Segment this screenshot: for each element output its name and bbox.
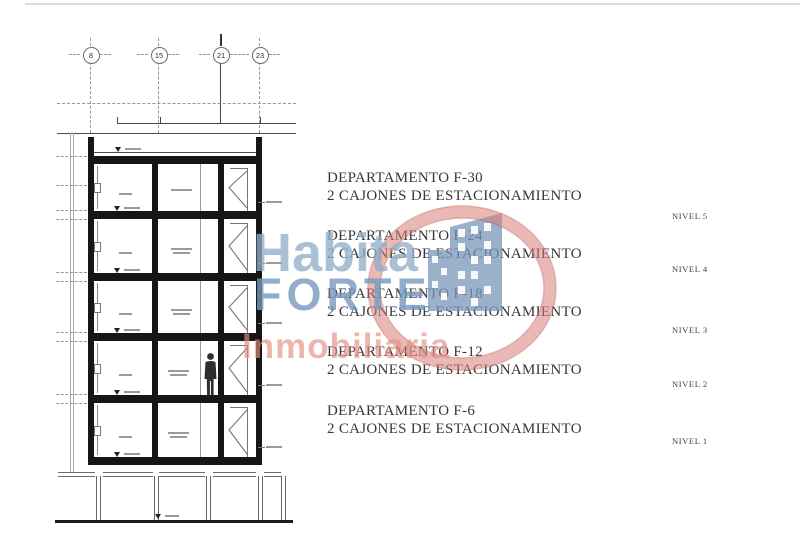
level-stub xyxy=(56,332,87,333)
level-marker-text xyxy=(124,207,140,209)
grid-bubble-label: 15 xyxy=(155,51,163,60)
stair-header xyxy=(230,285,247,286)
datum-dashed-line xyxy=(57,103,296,104)
partition-line xyxy=(200,341,201,395)
stair-wall xyxy=(247,223,248,273)
stair-header xyxy=(230,223,247,224)
level-marker-icon xyxy=(114,206,120,211)
department-label: DEPARTAMENTO F-6 xyxy=(327,403,582,421)
interior-column xyxy=(152,160,158,460)
window-sill xyxy=(94,303,101,313)
grid-tick xyxy=(69,54,80,55)
grid-tick xyxy=(168,54,179,55)
parapet-tick xyxy=(220,117,221,123)
basement-beam xyxy=(159,472,205,477)
level-marker-text xyxy=(125,148,141,150)
stair-wall xyxy=(247,345,248,395)
boundary-line xyxy=(73,133,74,473)
level-marker-icon xyxy=(114,268,120,273)
partition-line xyxy=(200,164,201,211)
landing-tick xyxy=(258,323,265,324)
stair-chevron xyxy=(229,171,247,208)
grid-axis-line xyxy=(220,62,221,123)
roof-slab xyxy=(88,156,262,164)
stair-chevron xyxy=(229,226,247,270)
landing-text xyxy=(266,262,282,264)
unit-block: DEPARTAMENTO F-30 2 CAJONES DE ESTACIONA… xyxy=(327,170,582,205)
stair-wall xyxy=(247,168,248,211)
landing-tick xyxy=(258,385,265,386)
level-label: NIVEL 1 xyxy=(672,436,708,446)
landing-text xyxy=(266,446,282,448)
parapet-tick xyxy=(160,117,161,123)
stair-chevron xyxy=(229,410,247,454)
grid-bubble-label: 21 xyxy=(217,51,225,60)
grid-bubble-15: 15 xyxy=(151,47,168,64)
grid-bubble-label: 23 xyxy=(256,51,264,60)
level-label: NIVEL 3 xyxy=(672,325,708,335)
landing-tick xyxy=(258,202,265,203)
level-stub xyxy=(56,341,87,342)
landing-text xyxy=(266,201,282,203)
partition-line xyxy=(200,281,201,333)
parking-label: 2 CAJONES DE ESTACIONAMIENTO xyxy=(327,362,582,380)
parapet-line xyxy=(117,123,296,124)
level-marker-text xyxy=(124,329,140,331)
partition-line xyxy=(200,403,201,457)
parapet-tick xyxy=(117,117,118,123)
unit-block: DEPARTAMENTO F-12 2 CAJONES DE ESTACIONA… xyxy=(327,344,582,379)
room-text xyxy=(173,313,190,315)
room-text xyxy=(119,193,132,195)
stair-wall xyxy=(247,285,248,333)
level-marker-text xyxy=(124,391,140,393)
department-label: DEPARTAMENTO F-24 xyxy=(327,228,582,246)
level-marker-icon xyxy=(155,514,161,519)
basement-column xyxy=(258,476,263,521)
landing-text xyxy=(266,384,282,386)
parking-label: 2 CAJONES DE ESTACIONAMIENTO xyxy=(327,421,582,439)
interior-column xyxy=(218,160,224,460)
level-marker-text xyxy=(124,269,140,271)
grid-tick xyxy=(269,54,280,55)
floor-slab xyxy=(88,333,262,341)
level-label: NIVEL 5 xyxy=(672,211,708,221)
unit-block: DEPARTAMENTO F-24 2 CAJONES DE ESTACIONA… xyxy=(327,228,582,263)
basement-column xyxy=(96,476,101,521)
basement-beam xyxy=(103,472,153,477)
level-label: NIVEL 4 xyxy=(672,264,708,274)
exterior-wall-right xyxy=(256,137,262,465)
ground-slab xyxy=(88,457,262,465)
floor-slab xyxy=(88,273,262,281)
basement-beam xyxy=(58,472,95,477)
floor-slab xyxy=(88,395,262,403)
level-marker-text xyxy=(165,515,179,517)
landing-text xyxy=(266,322,282,324)
room-text xyxy=(119,313,132,315)
landing-tick xyxy=(258,447,265,448)
window-sill xyxy=(94,242,101,252)
grid-tick xyxy=(100,54,111,55)
roof-line xyxy=(94,152,256,153)
unit-block: DEPARTAMENTO F-18 2 CAJONES DE ESTACIONA… xyxy=(327,286,582,321)
room-text xyxy=(168,370,189,372)
unit-block: DEPARTAMENTO F-6 2 CAJONES DE ESTACIONAM… xyxy=(327,403,582,438)
level-marker-icon xyxy=(114,390,120,395)
grid-tick xyxy=(238,54,249,55)
room-text xyxy=(173,252,190,254)
grid-bubble-8: 8 xyxy=(83,47,100,64)
level-stub xyxy=(56,394,87,395)
level-stub xyxy=(56,156,87,157)
partition-line xyxy=(200,219,201,273)
level-stub xyxy=(56,210,87,211)
level-stub xyxy=(56,281,87,282)
room-text xyxy=(171,248,192,250)
room-text xyxy=(168,432,189,434)
parking-label: 2 CAJONES DE ESTACIONAMIENTO xyxy=(327,246,582,264)
basement-column xyxy=(281,476,286,521)
site-line xyxy=(57,133,296,134)
grid-tick xyxy=(220,34,222,46)
room-text xyxy=(119,374,132,376)
basement-beam xyxy=(213,472,256,477)
page-top-rule xyxy=(25,3,800,5)
stair-chevron xyxy=(229,288,247,330)
department-label: DEPARTAMENTO F-12 xyxy=(327,344,582,362)
room-text xyxy=(119,436,132,438)
drawing-page: 8 15 21 23 .bubble{left:82.5px;top:46.5p… xyxy=(0,0,800,541)
floor-slab xyxy=(88,211,262,219)
landing-tick xyxy=(258,263,265,264)
level-stub xyxy=(56,219,87,220)
grid-axis-line xyxy=(90,62,91,133)
basement-beam xyxy=(264,472,281,477)
grid-tick xyxy=(90,38,91,46)
level-stub xyxy=(56,403,87,404)
stair-wall xyxy=(247,407,248,457)
stair-header xyxy=(230,407,247,408)
room-text xyxy=(171,309,192,311)
level-stub xyxy=(56,272,87,273)
grid-bubble-label: 8 xyxy=(89,51,93,60)
stair-chevron xyxy=(229,348,247,392)
level-marker-icon xyxy=(115,147,121,152)
room-text xyxy=(170,374,187,376)
room-text xyxy=(119,252,132,254)
stair-header xyxy=(230,168,247,169)
department-label: DEPARTAMENTO F-30 xyxy=(327,170,582,188)
level-label: NIVEL 2 xyxy=(672,379,708,389)
level-marker-icon xyxy=(114,328,120,333)
room-text xyxy=(170,436,187,438)
room-text xyxy=(171,189,192,191)
grid-tick xyxy=(259,38,260,46)
stair-header xyxy=(230,345,247,346)
grid-bubble-23: 23 xyxy=(252,47,269,64)
parking-label: 2 CAJONES DE ESTACIONAMIENTO xyxy=(327,188,582,206)
basement-column xyxy=(206,476,211,521)
parking-label: 2 CAJONES DE ESTACIONAMIENTO xyxy=(327,304,582,322)
grid-tick xyxy=(137,54,148,55)
window-sill xyxy=(94,183,101,193)
ground-line xyxy=(55,520,293,523)
department-label: DEPARTAMENTO F-18 xyxy=(327,286,582,304)
level-marker-text xyxy=(124,453,140,455)
grid-tick xyxy=(199,54,210,55)
window-sill xyxy=(94,426,101,436)
parapet-tick xyxy=(260,117,261,123)
level-marker-icon xyxy=(114,452,120,457)
person-figure xyxy=(205,353,217,395)
boundary-line xyxy=(70,133,71,473)
window-sill xyxy=(94,364,101,374)
grid-bubble-21: 21 xyxy=(213,47,230,64)
grid-tick xyxy=(158,38,159,46)
level-stub xyxy=(56,185,87,186)
